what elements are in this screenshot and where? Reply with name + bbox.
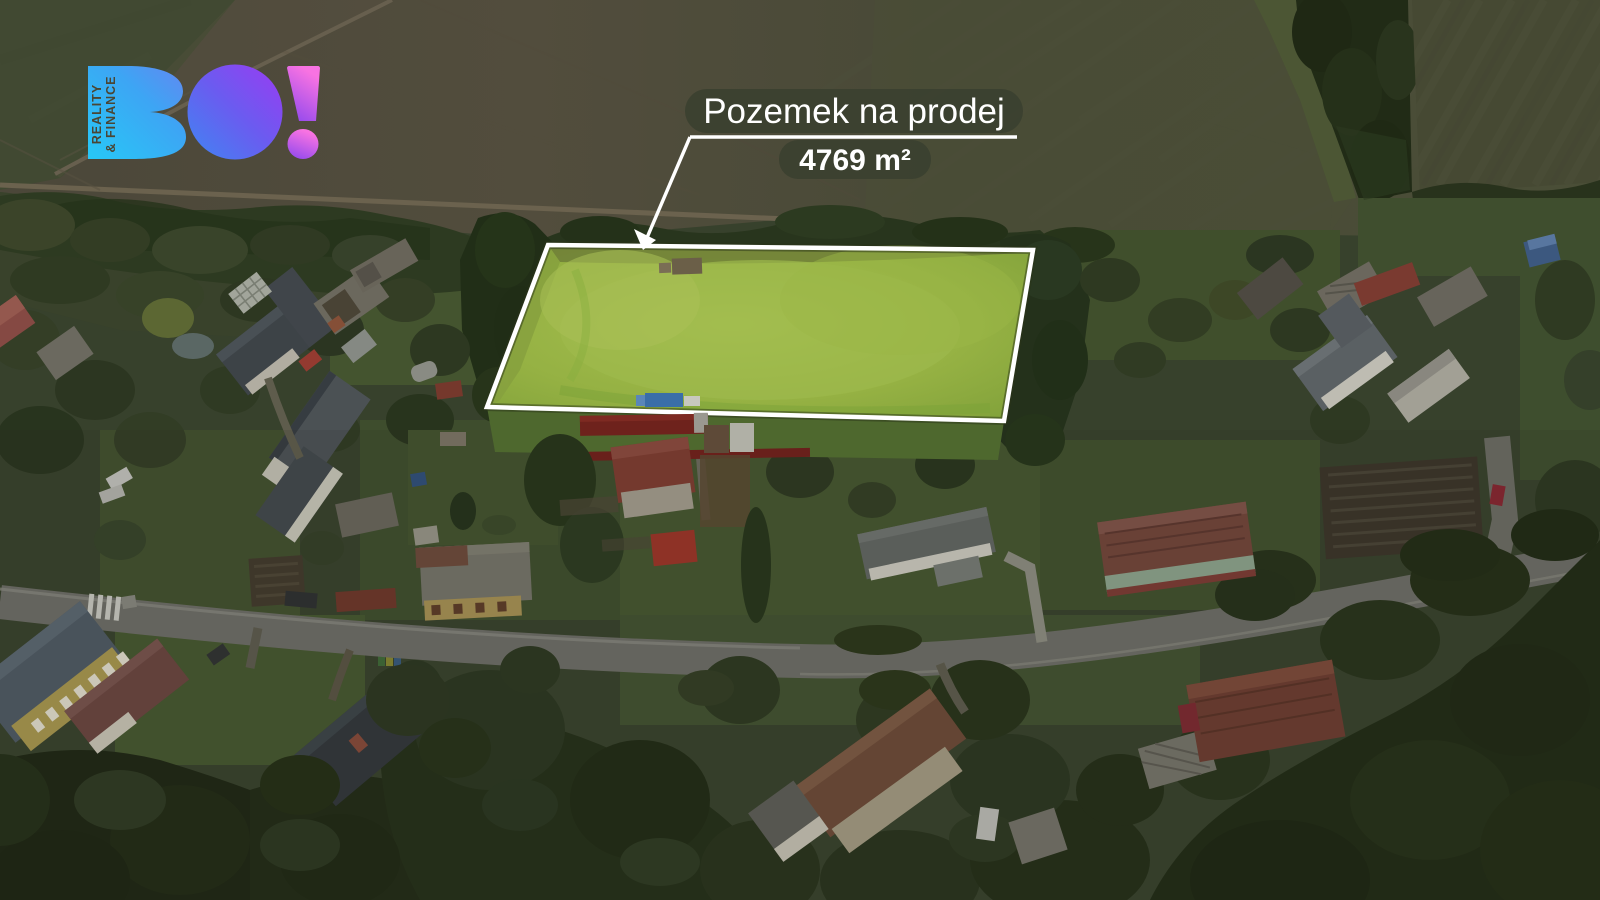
svg-text:Pozemek na prodej: Pozemek na prodej [703,92,1005,131]
svg-text:REALITY: REALITY [90,84,104,144]
svg-text:4769 m²: 4769 m² [799,144,911,177]
svg-text:& FINANCE: & FINANCE [104,75,118,152]
